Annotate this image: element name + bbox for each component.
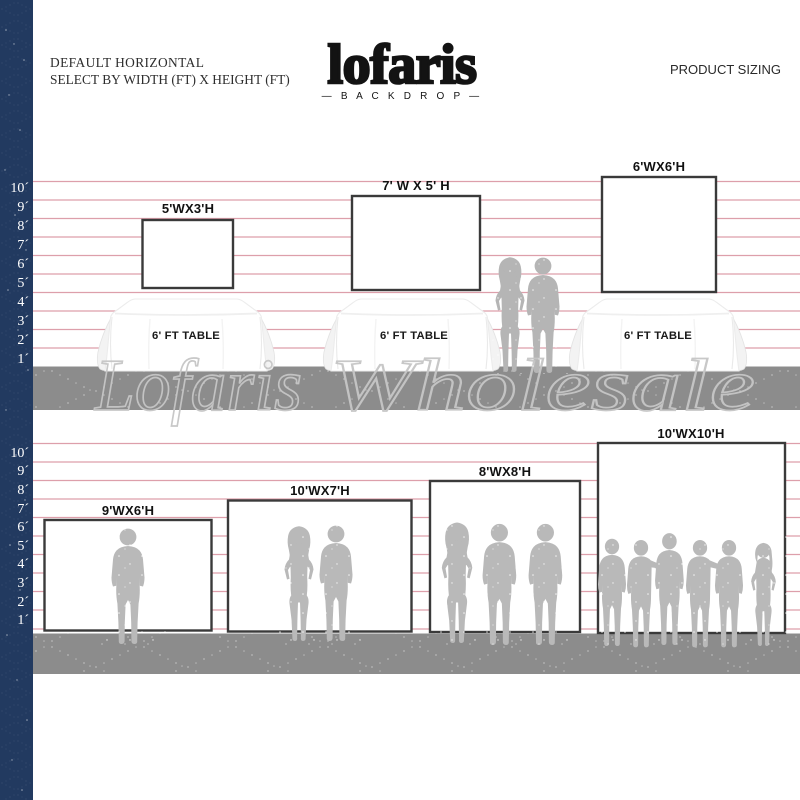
svg-text:9´: 9´ bbox=[17, 464, 29, 479]
svg-text:4´: 4´ bbox=[17, 557, 29, 572]
svg-text:7´: 7´ bbox=[17, 238, 29, 253]
svg-text:1´: 1´ bbox=[17, 352, 29, 367]
svg-text:8'WX8'H: 8'WX8'H bbox=[479, 464, 531, 479]
svg-text:Lofaris: Lofaris bbox=[94, 345, 302, 427]
svg-text:DEFAULT HORIZONTAL: DEFAULT HORIZONTAL bbox=[50, 55, 204, 70]
svg-text:PRODUCT SIZING: PRODUCT SIZING bbox=[670, 62, 781, 77]
svg-text:8´: 8´ bbox=[17, 483, 29, 498]
svg-text:6' FT TABLE: 6' FT TABLE bbox=[152, 330, 220, 342]
svg-text:9'WX6'H: 9'WX6'H bbox=[102, 503, 154, 518]
svg-text:5´: 5´ bbox=[17, 276, 29, 291]
svg-text:5´: 5´ bbox=[17, 539, 29, 554]
svg-text:4´: 4´ bbox=[17, 295, 29, 310]
svg-text:10'WX10'H: 10'WX10'H bbox=[657, 426, 724, 441]
svg-text:6' FT TABLE: 6' FT TABLE bbox=[380, 330, 448, 342]
svg-text:6'WX6'H: 6'WX6'H bbox=[633, 159, 685, 174]
svg-text:9´: 9´ bbox=[17, 200, 29, 215]
svg-text:5'WX3'H: 5'WX3'H bbox=[162, 201, 214, 216]
svg-text:— B A C K D R O P —: — B A C K D R O P — bbox=[322, 91, 483, 102]
svg-text:10'WX7'H: 10'WX7'H bbox=[290, 483, 350, 498]
svg-text:7' W X 5' H: 7' W X 5' H bbox=[382, 178, 450, 193]
svg-text:10´: 10´ bbox=[10, 181, 29, 196]
svg-text:3´: 3´ bbox=[17, 314, 29, 329]
svg-text:1´: 1´ bbox=[17, 613, 29, 628]
svg-text:8´: 8´ bbox=[17, 219, 29, 234]
svg-text:3´: 3´ bbox=[17, 576, 29, 591]
svg-text:6' FT TABLE: 6' FT TABLE bbox=[624, 330, 692, 342]
svg-text:6´: 6´ bbox=[17, 257, 29, 272]
svg-text:2´: 2´ bbox=[17, 595, 29, 610]
svg-text:2´: 2´ bbox=[17, 333, 29, 348]
svg-text:7´: 7´ bbox=[17, 502, 29, 517]
svg-text:lofaris: lofaris bbox=[328, 34, 477, 96]
svg-text:10´: 10´ bbox=[10, 446, 29, 461]
svg-text:6´: 6´ bbox=[17, 520, 29, 535]
svg-text:SELECT BY WIDTH (FT) X HEIGHT: SELECT BY WIDTH (FT) X HEIGHT (FT) bbox=[50, 72, 290, 87]
